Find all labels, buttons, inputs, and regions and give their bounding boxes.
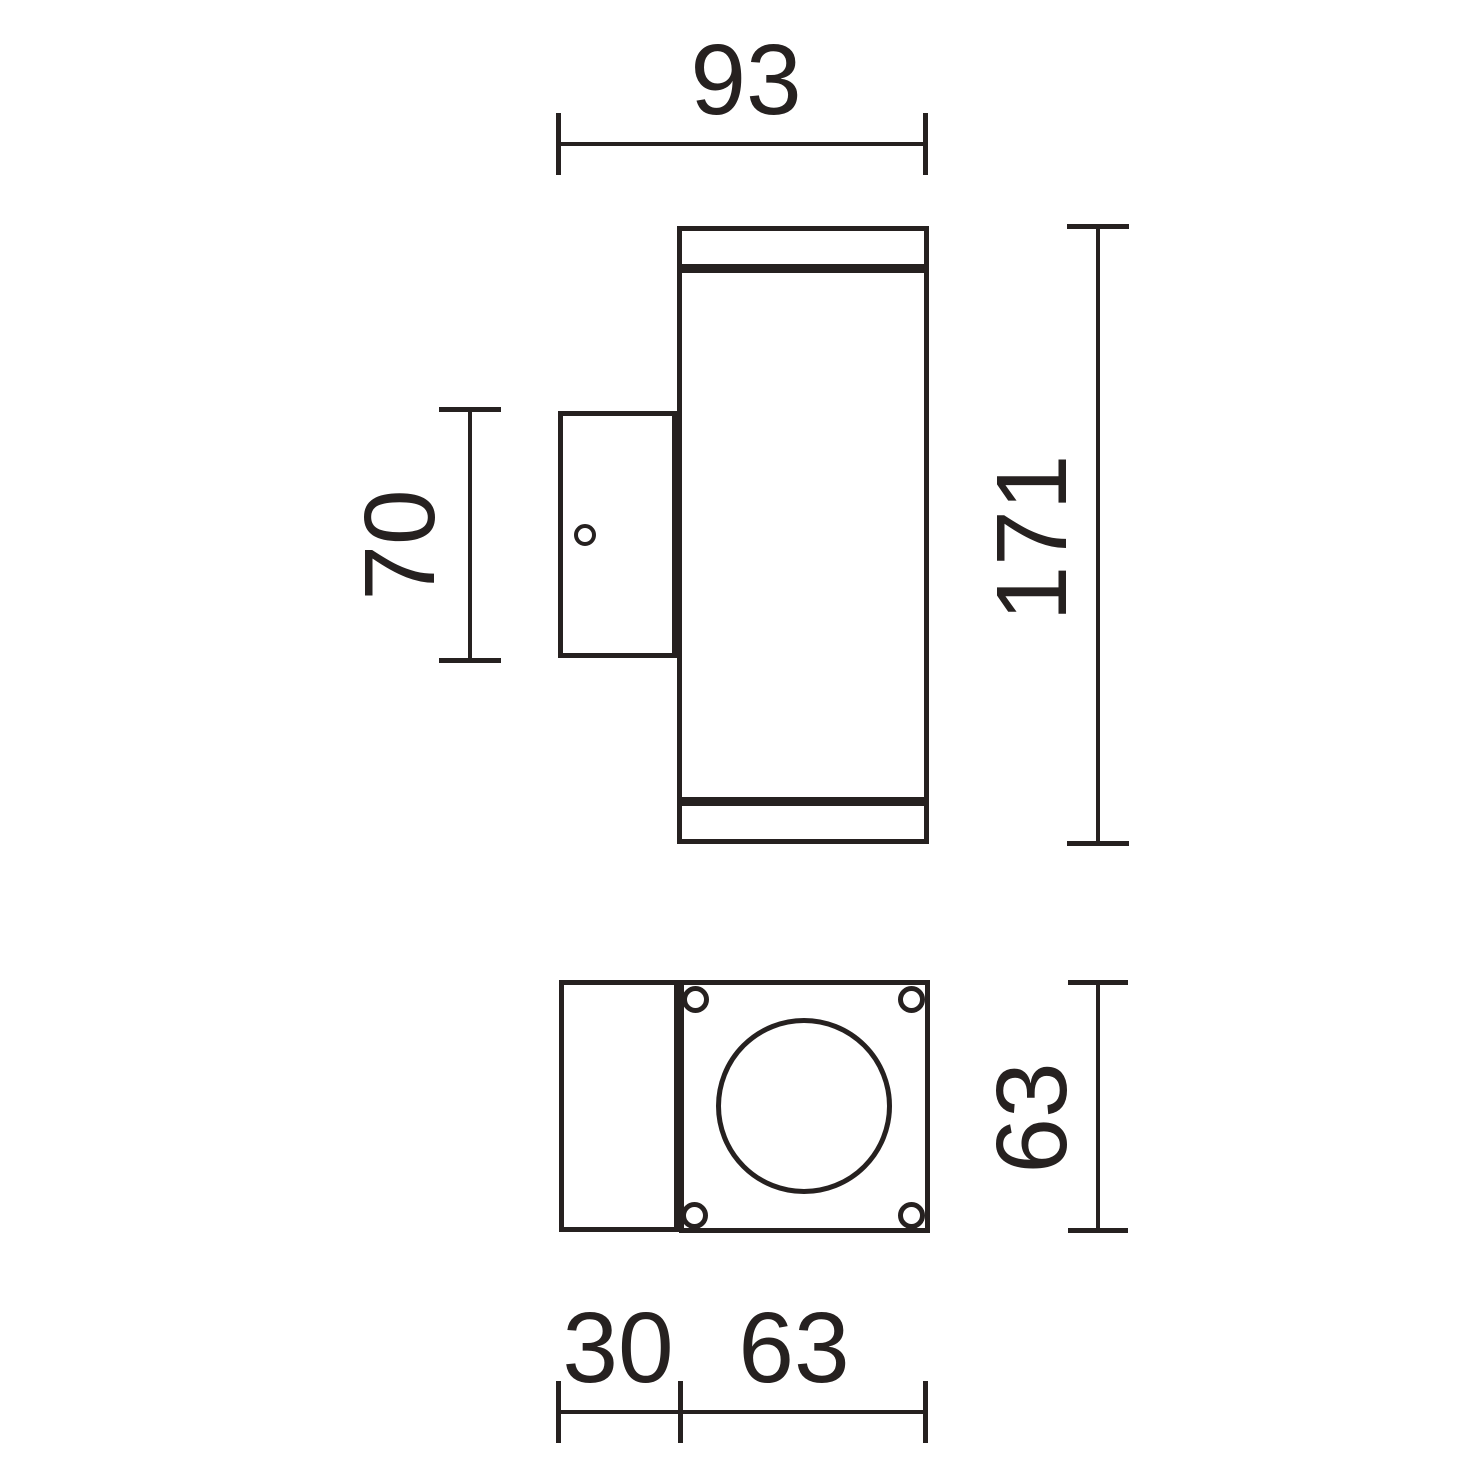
dim-171-label: 171 — [982, 455, 1082, 622]
dim-171-line — [1096, 227, 1100, 845]
dim-70-tick-top — [439, 407, 501, 412]
lamp-opening-circle — [716, 1018, 892, 1194]
dim-bottom-tick-middle — [678, 1381, 683, 1443]
dim-30-label: 30 — [562, 1298, 673, 1398]
dim-63-right-line — [1096, 982, 1100, 1232]
dim-171-tick-top — [1067, 224, 1129, 229]
dim-70-tick-bottom — [439, 658, 501, 663]
dim-93-tick-left — [556, 113, 561, 175]
lamp-body-outline — [677, 226, 929, 844]
screw-hole-bottom-right — [898, 1202, 925, 1229]
technical-drawing-canvas: 93 70 171 — [0, 0, 1476, 1476]
dim-93-label: 93 — [690, 30, 801, 130]
dim-63-right-tick-top — [1068, 980, 1128, 985]
dim-70-label: 70 — [350, 489, 450, 600]
lamp-top-cap-joint-line — [677, 264, 929, 273]
screw-hole-bottom-left — [681, 1202, 708, 1229]
dim-bottom-line — [558, 1410, 927, 1414]
bracket-screw-hole — [574, 524, 596, 546]
lamp-bottom-cap-joint-line — [677, 797, 929, 806]
screw-hole-top-right — [898, 986, 925, 1013]
dim-bottom-tick-right — [923, 1381, 928, 1443]
dim-171-tick-bottom — [1067, 841, 1129, 846]
dim-93-tick-right — [923, 113, 928, 175]
screw-hole-top-left — [682, 986, 709, 1013]
bracket-side-outline — [559, 980, 679, 1232]
dim-70-line — [468, 409, 472, 661]
dim-63-bottom-label: 63 — [738, 1298, 849, 1398]
dim-bottom-tick-left — [556, 1381, 561, 1443]
dim-63-right-label: 63 — [982, 1062, 1082, 1173]
dim-63-right-tick-bottom — [1068, 1228, 1128, 1233]
dim-93-line — [559, 142, 927, 146]
